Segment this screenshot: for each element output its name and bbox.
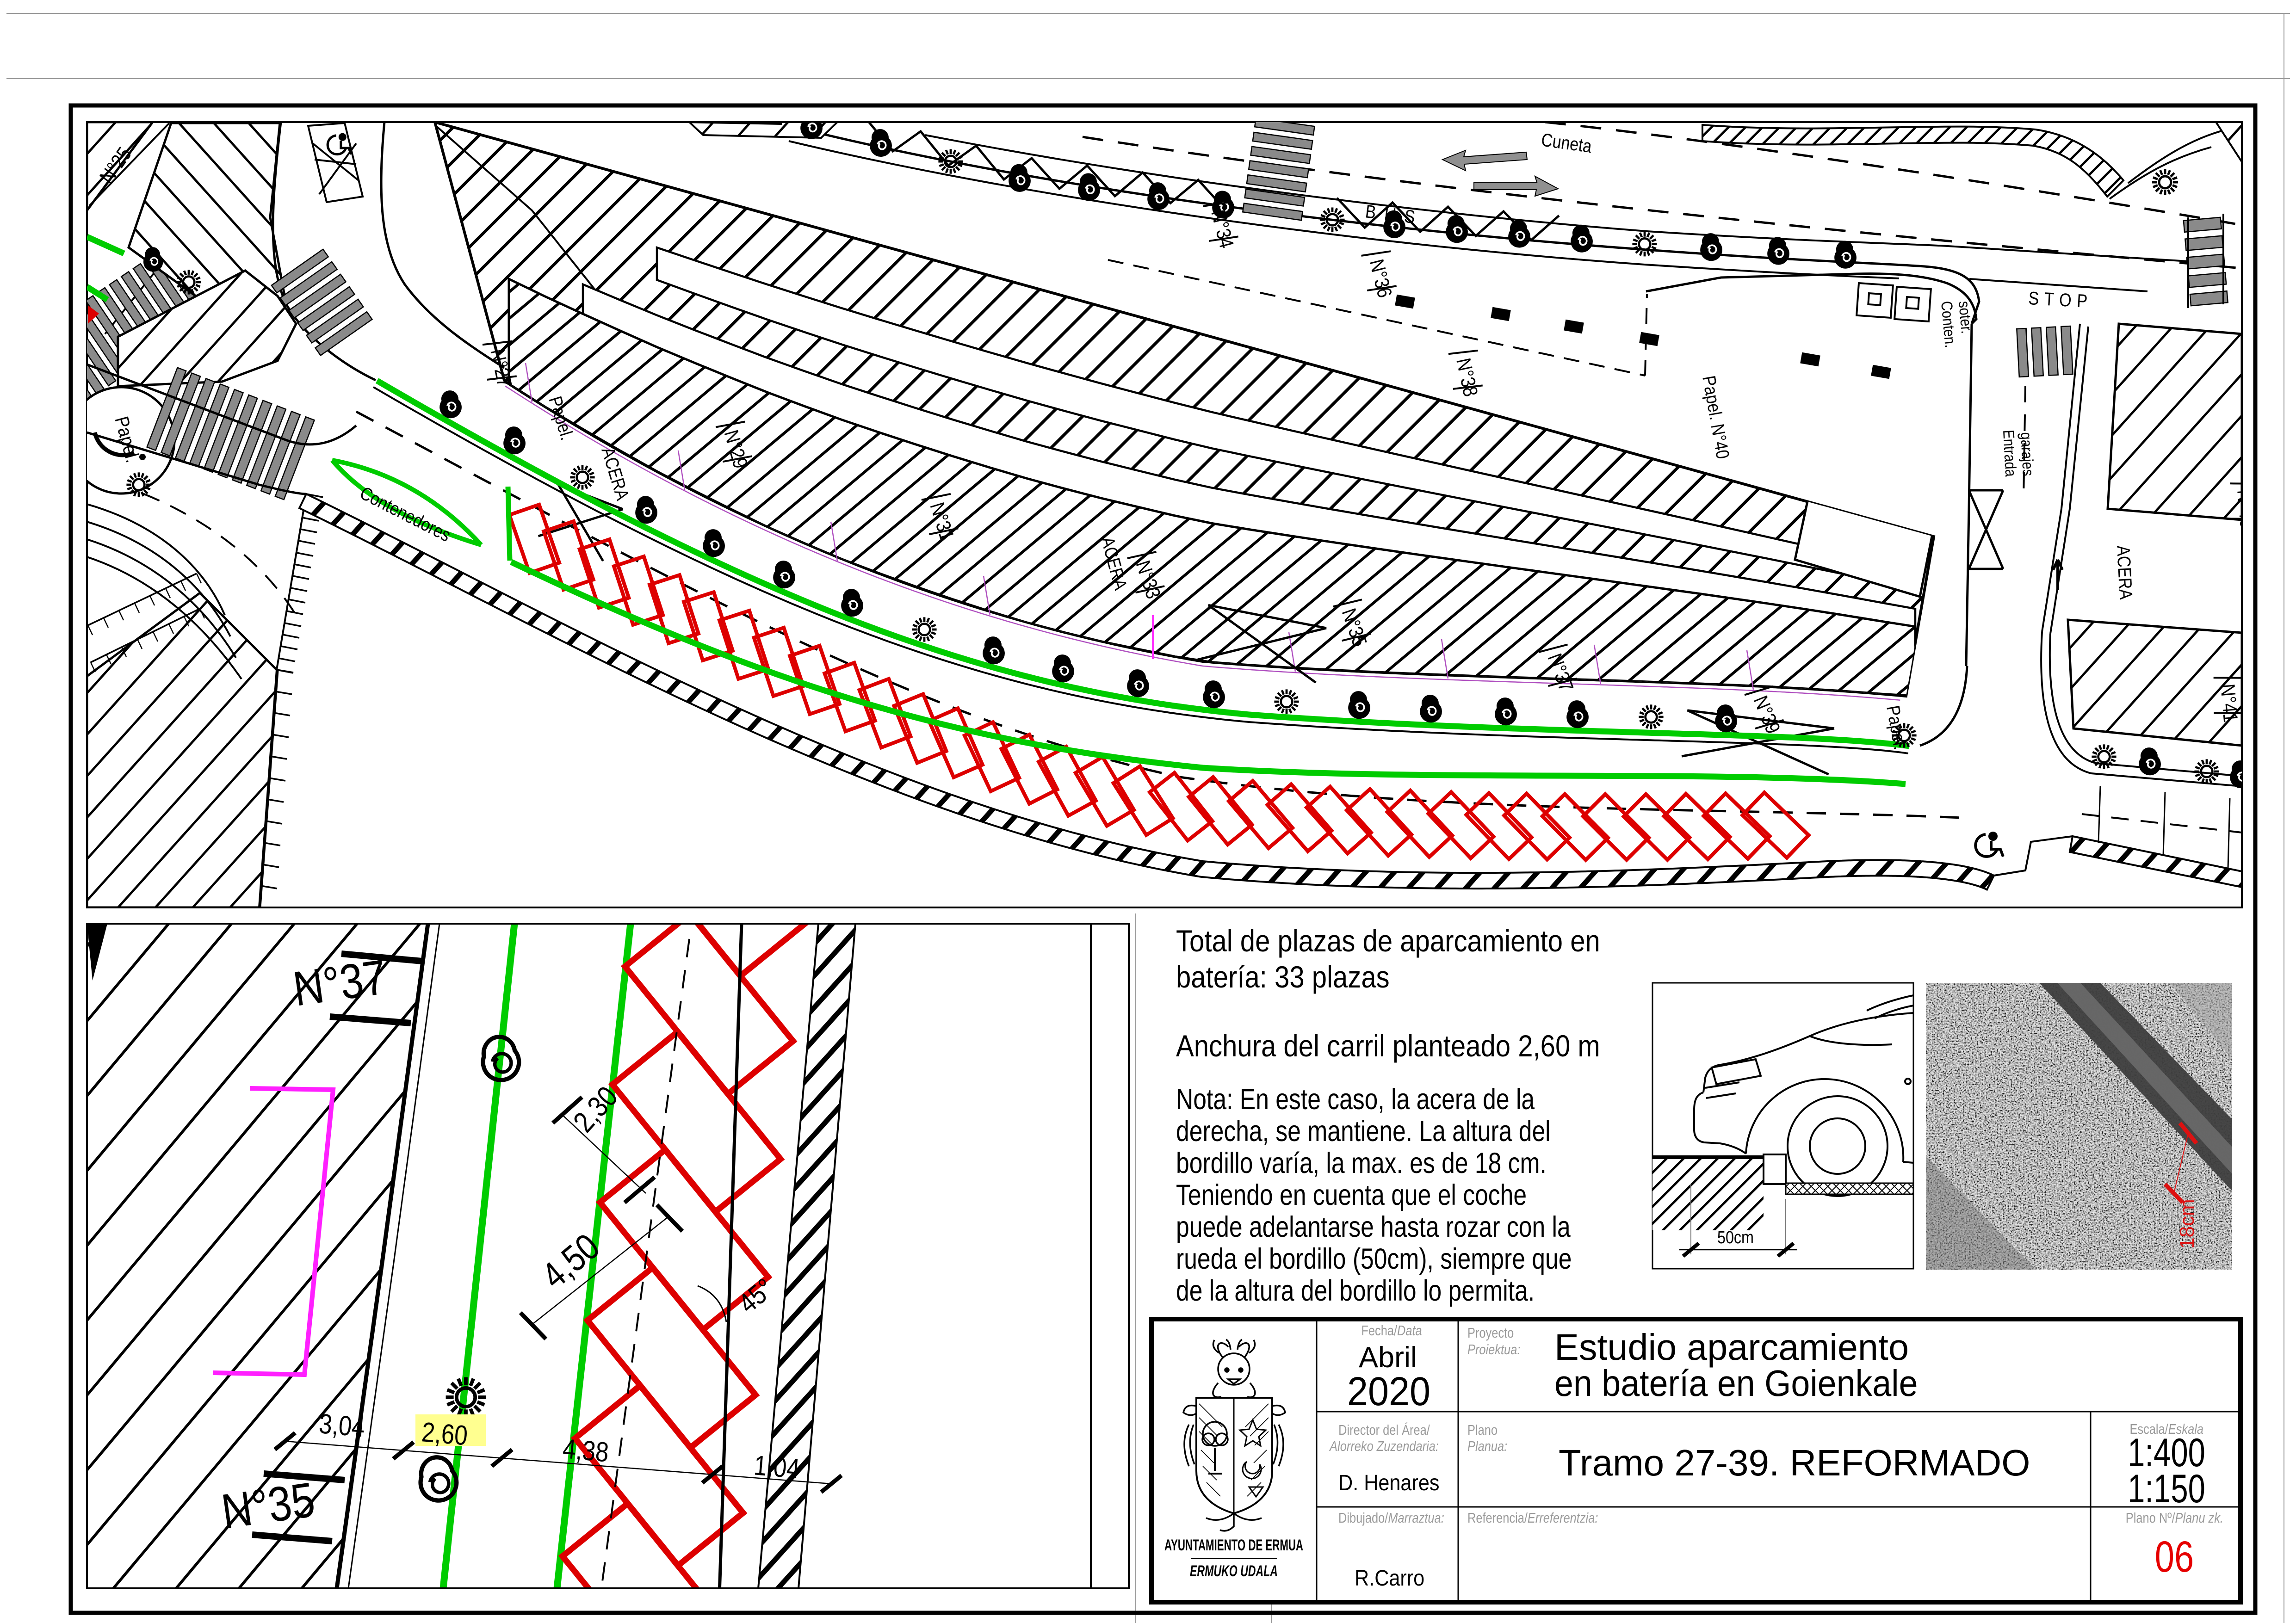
svg-text:Plano: Plano [1467, 1422, 1498, 1438]
svg-text:garajes: garajes [2017, 432, 2037, 476]
svg-text:1:150: 1:150 [2128, 1467, 2205, 1511]
svg-text:06: 06 [2155, 1532, 2194, 1581]
svg-text:en batería en Goienkale: en batería en Goienkale [1554, 1363, 1918, 1404]
svg-text:derecha, se mantiene. La altur: derecha, se mantiene. La altura del [1176, 1115, 1551, 1148]
svg-text:Alorreko Zuzendaria:: Alorreko Zuzendaria: [1329, 1438, 1439, 1455]
svg-text:Total de plazas de aparcamien: Total de plazas de aparcamiento en [1176, 925, 1600, 958]
svg-text:D. Henares: D. Henares [1338, 1470, 1439, 1495]
svg-text:Director del Área/: Director del Área/ [1338, 1422, 1430, 1438]
svg-text:ERMUKO UDALA: ERMUKO UDALA [1190, 1562, 1278, 1580]
svg-text:2,60: 2,60 [421, 1416, 469, 1451]
svg-text:Tramo 27-39. REFORMADO: Tramo 27-39. REFORMADO [1559, 1442, 2030, 1483]
svg-text:Planua:: Planua: [1467, 1438, 1507, 1455]
svg-text:puede adelantarse hasta rozar: puede adelantarse hasta rozar con la [1176, 1211, 1571, 1243]
svg-text:Fecha/Data: Fecha/Data [1361, 1323, 1422, 1339]
svg-text:18cm: 18cm [2176, 1199, 2198, 1249]
svg-text:Proyecto: Proyecto [1467, 1325, 1514, 1341]
svg-text:Proiektua:: Proiektua: [1467, 1342, 1520, 1358]
svg-text:Nota: En este caso, la acera d: Nota: En este caso, la acera de la [1176, 1083, 1535, 1116]
svg-text:rueda el bordillo (50cm), siem: rueda el bordillo (50cm), siempre que [1176, 1243, 1572, 1275]
svg-text:STOP: STOP [2028, 287, 2094, 311]
svg-text:Anchura del carril planteado 2: Anchura del carril planteado 2,60 m [1176, 1030, 1600, 1063]
svg-text:3,04: 3,04 [318, 1408, 366, 1443]
svg-text:Plano Nº/Planu zk.: Plano Nº/Planu zk. [2126, 1510, 2223, 1526]
svg-text:50cm: 50cm [1717, 1228, 1754, 1247]
svg-text:AYUNTAMIENTO DE ERMUA: AYUNTAMIENTO DE ERMUA [1164, 1537, 1303, 1554]
svg-text:Teniendo en cuenta que el coch: Teniendo en cuenta que el coche [1176, 1179, 1527, 1211]
svg-text:1,04: 1,04 [753, 1450, 801, 1484]
svg-text:2020: 2020 [1347, 1369, 1430, 1413]
svg-text:bordillo varía, la max. es de: bordillo varía, la max. es de 18 cm. [1176, 1147, 1547, 1179]
svg-text:Estudio aparcamiento: Estudio aparcamiento [1554, 1327, 1909, 1368]
svg-text:ACERA: ACERA [2113, 545, 2136, 600]
svg-text:Referencia/Erreferentzia:: Referencia/Erreferentzia: [1467, 1510, 1598, 1526]
svg-text:soter.: soter. [1955, 300, 1976, 334]
svg-text:batería: 33 plazas: batería: 33 plazas [1176, 961, 1390, 994]
svg-text:N°41: N°41 [2216, 683, 2242, 724]
svg-text:Dibujado/Marraztua:: Dibujado/Marraztua: [1338, 1510, 1444, 1526]
svg-text:Entrada: Entrada [1999, 429, 2020, 477]
svg-text:de la altura del bordillo lo p: de la altura del bordillo lo permita. [1176, 1275, 1535, 1307]
svg-text:4,38: 4,38 [562, 1433, 610, 1468]
svg-text:R.Carro: R.Carro [1355, 1566, 1424, 1591]
